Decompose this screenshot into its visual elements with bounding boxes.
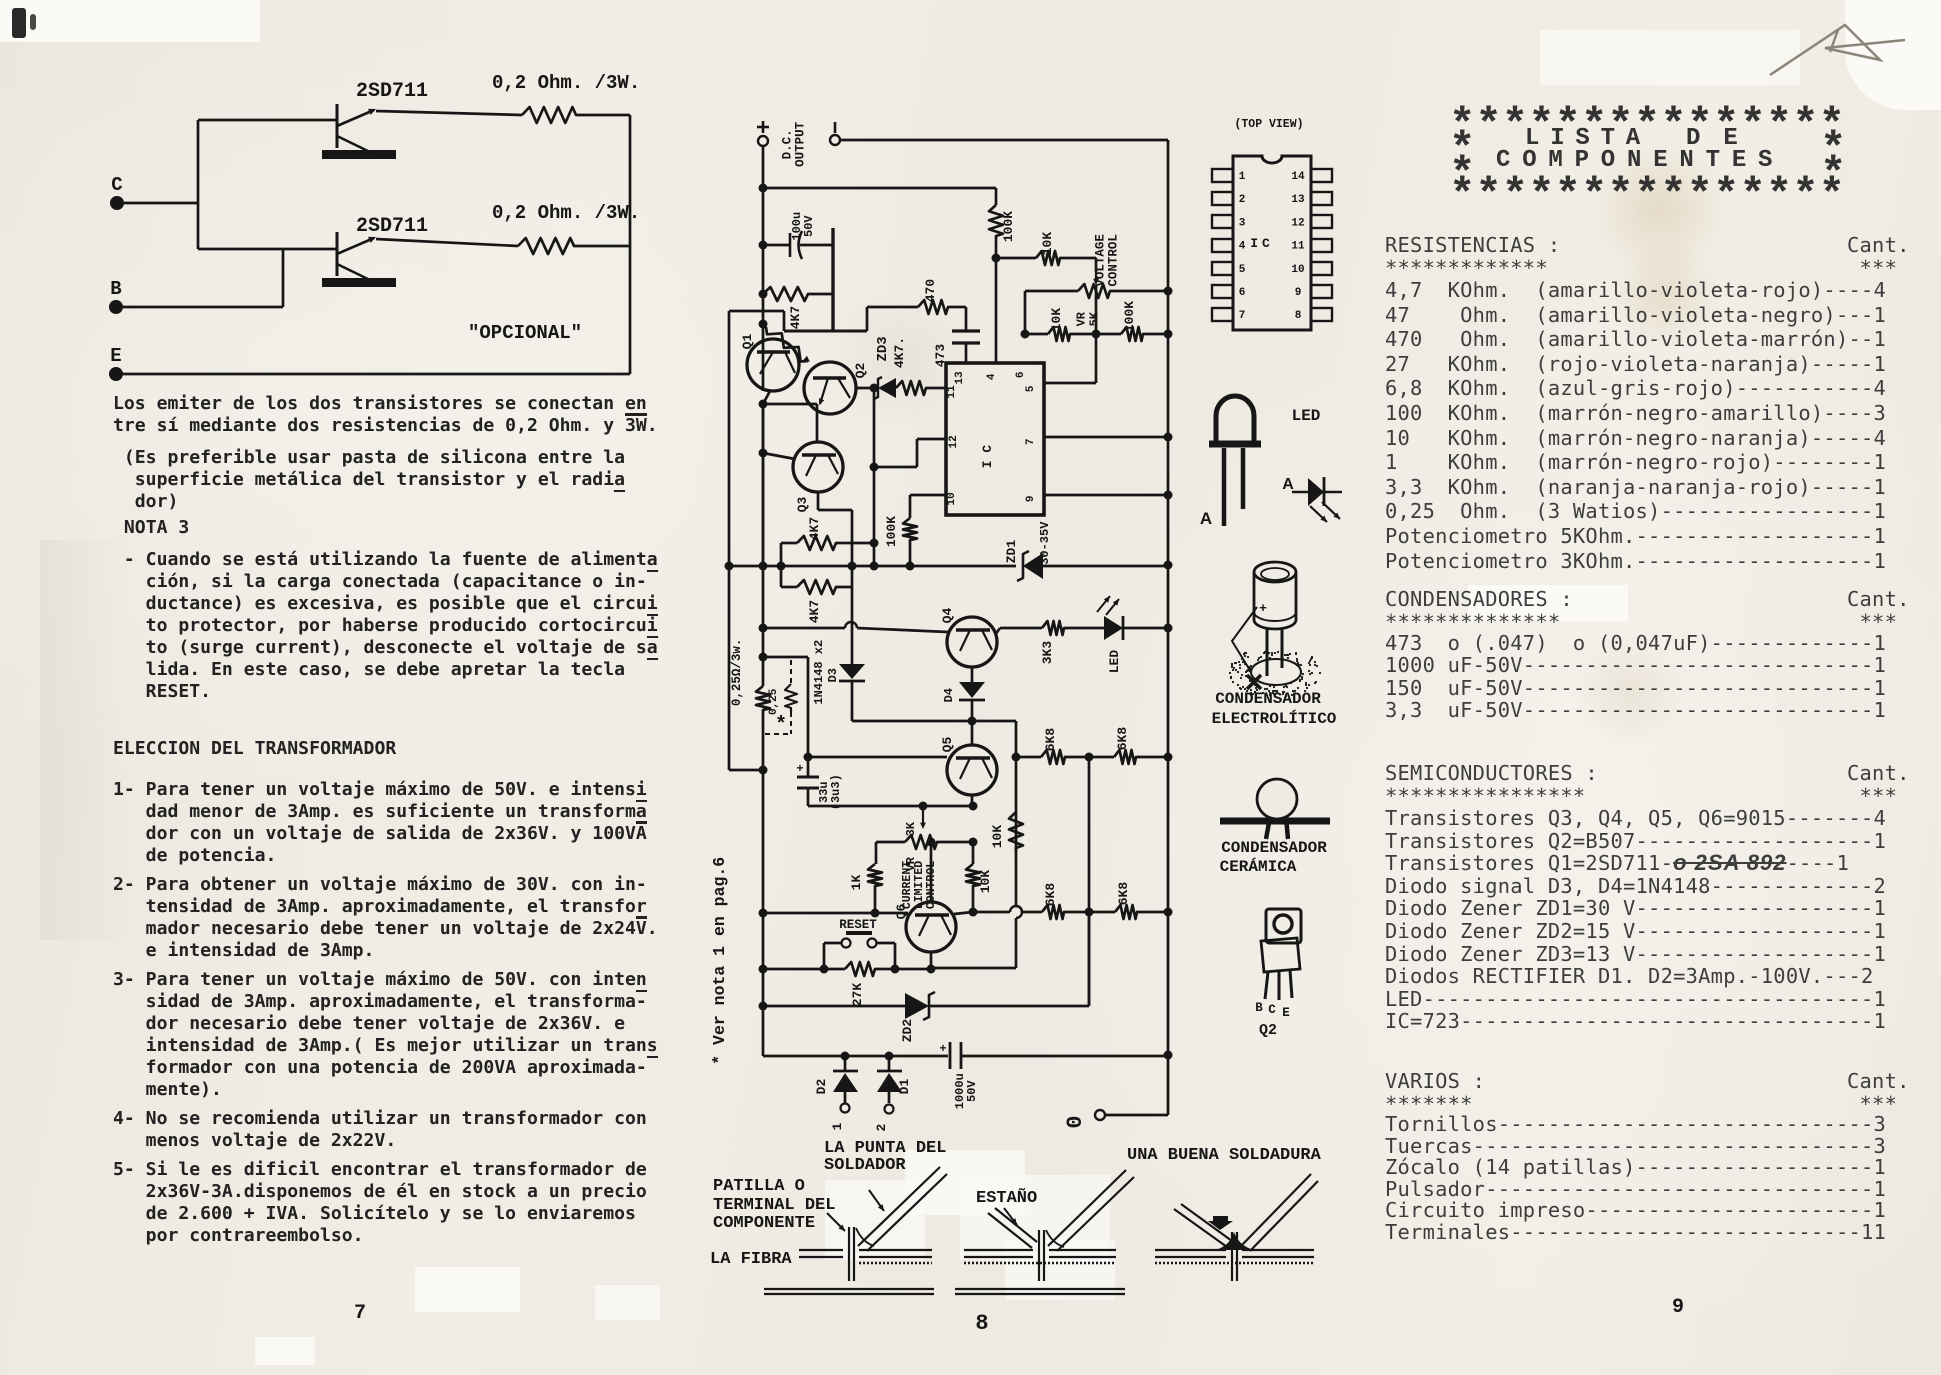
svg-text:10K: 10K	[1040, 232, 1055, 256]
svg-text:2SD711: 2SD711	[356, 80, 428, 103]
svg-text:LA FIBRA: LA FIBRA	[710, 1250, 792, 1269]
svg-text:1: 1	[830, 1122, 845, 1130]
svg-text:SOLDADOR: SOLDADOR	[824, 1156, 906, 1175]
svg-text:COMPONENTE: COMPONENTE	[713, 1214, 815, 1233]
svg-text:VR: VR	[1075, 311, 1089, 326]
svg-text:D.C.: D.C.	[781, 129, 795, 159]
svg-text:5: 5	[1239, 264, 1246, 276]
svg-text:0: 0	[1063, 1115, 1088, 1128]
svg-text:0,25: 0,25	[768, 688, 780, 715]
svg-text:(TOP VIEW): (TOP VIEW)	[1234, 118, 1303, 131]
svg-text:10K: 10K	[1049, 308, 1064, 332]
svg-text:Q5: Q5	[940, 737, 955, 753]
svg-text:ZD2: ZD2	[900, 1019, 915, 1043]
svg-text:13: 13	[954, 371, 966, 385]
svg-text:2SD711: 2SD711	[356, 215, 428, 238]
svg-text:+: +	[1259, 601, 1267, 616]
svg-text:0,2 Ohm. /3W.: 0,2 Ohm. /3W.	[492, 72, 640, 94]
svg-text:6: 6	[1239, 287, 1246, 299]
svg-text:ELECTROLÍTICO: ELECTROLÍTICO	[1212, 709, 1337, 728]
svg-text:Q1: Q1	[740, 334, 755, 350]
svg-text:Q2: Q2	[853, 363, 868, 379]
svg-text:B: B	[110, 278, 121, 300]
svg-text:9: 9	[1025, 496, 1037, 503]
svg-text:6: 6	[1015, 372, 1027, 379]
svg-text:C: C	[111, 174, 122, 196]
svg-text:D4: D4	[942, 688, 956, 702]
svg-text:50V: 50V	[965, 1080, 979, 1102]
svg-text:1: 1	[1239, 171, 1246, 183]
svg-text:*: *	[775, 714, 787, 737]
svg-text:D2: D2	[814, 1079, 829, 1095]
svg-text:CERÁMICA: CERÁMICA	[1220, 857, 1297, 876]
svg-text:E: E	[1282, 1006, 1290, 1020]
svg-text:TERMINAL DEL: TERMINAL DEL	[713, 1196, 835, 1215]
svg-text:9: 9	[1672, 1296, 1684, 1319]
svg-text:50V: 50V	[802, 215, 816, 237]
svg-text:4: 4	[986, 373, 998, 380]
svg-text:ESTAÑO: ESTAÑO	[976, 1187, 1037, 1208]
svg-text:12: 12	[948, 435, 960, 448]
svg-text:Q4: Q4	[940, 608, 955, 624]
svg-text:CONDENSADOR: CONDENSADOR	[1215, 690, 1321, 708]
svg-text:1N4148 x2: 1N4148 x2	[812, 640, 826, 705]
svg-text:E: E	[110, 345, 121, 367]
svg-text:I C: I C	[980, 445, 995, 469]
svg-text:3: 3	[1239, 217, 1246, 229]
svg-text:LED: LED	[1107, 650, 1122, 674]
svg-text:UNA BUENA SOLDADURA: UNA BUENA SOLDADURA	[1127, 1146, 1322, 1165]
svg-text:10: 10	[1291, 264, 1304, 276]
svg-text:D1: D1	[897, 1079, 912, 1095]
svg-text:Q6: Q6	[894, 904, 909, 920]
svg-text:7: 7	[1239, 310, 1246, 322]
svg-text:5: 5	[1025, 385, 1037, 392]
svg-text:11: 11	[1291, 241, 1305, 253]
svg-text:A: A	[1200, 509, 1212, 528]
svg-text:8: 8	[1295, 310, 1302, 322]
svg-text:7: 7	[1025, 439, 1037, 446]
svg-text:IC: IC	[1250, 236, 1274, 251]
svg-text:2: 2	[1239, 194, 1246, 206]
svg-text:OUTPUT: OUTPUT	[794, 121, 808, 167]
svg-text:LED: LED	[1292, 407, 1321, 425]
svg-text:10K: 10K	[990, 825, 1005, 849]
svg-text:6K8: 6K8	[1116, 882, 1131, 906]
svg-text:4K7: 4K7	[807, 517, 822, 540]
svg-text:ZD1: ZD1	[1004, 540, 1019, 564]
svg-text:RESET: RESET	[839, 918, 877, 932]
svg-text:0,25Ω/3w.: 0,25Ω/3w.	[730, 639, 744, 707]
svg-text:470: 470	[923, 279, 938, 303]
svg-text:0,2 Ohm. /3W.: 0,2 Ohm. /3W.	[492, 202, 640, 224]
svg-text:Q2: Q2	[1259, 1022, 1277, 1039]
svg-text:12: 12	[1291, 217, 1304, 229]
svg-text:CONTROL: CONTROL	[1107, 234, 1121, 287]
svg-text:100K: 100K	[1001, 211, 1016, 242]
svg-text:8: 8	[975, 1311, 988, 1336]
svg-text:100K: 100K	[884, 516, 899, 547]
svg-text:13: 13	[1291, 194, 1305, 206]
svg-text:6K8: 6K8	[1115, 727, 1130, 751]
svg-text:4K7.: 4K7.	[892, 337, 907, 368]
svg-text:* Ver nota 1 en pag.6: * Ver nota 1 en pag.6	[710, 857, 729, 1065]
svg-text:10: 10	[946, 492, 958, 505]
svg-text:A: A	[1282, 476, 1294, 493]
svg-text:100K: 100K	[1122, 301, 1137, 332]
svg-text:3K: 3K	[904, 821, 918, 836]
svg-text:2: 2	[874, 1123, 889, 1131]
svg-text:6K8: 6K8	[1043, 883, 1058, 907]
svg-text:4: 4	[1239, 241, 1246, 253]
svg-text:27K: 27K	[850, 983, 865, 1007]
svg-text:9: 9	[1295, 287, 1302, 299]
svg-text:30-35V: 30-35V	[1038, 521, 1052, 565]
svg-text:3K3: 3K3	[1040, 641, 1055, 665]
svg-text:1K: 1K	[849, 875, 864, 891]
svg-text:6K8: 6K8	[1043, 728, 1058, 752]
svg-text:11: 11	[946, 385, 958, 399]
svg-text:4K7: 4K7	[788, 306, 803, 329]
svg-text:PATILLA O: PATILLA O	[713, 1177, 805, 1196]
svg-text:14: 14	[1291, 171, 1305, 183]
svg-text:ZD3: ZD3	[875, 336, 891, 361]
svg-text:Q3: Q3	[795, 497, 810, 513]
svg-text:C: C	[1268, 1003, 1276, 1017]
svg-text:10K: 10K	[978, 870, 993, 894]
svg-text:7: 7	[354, 1302, 366, 1325]
svg-text:CONDENSADOR: CONDENSADOR	[1221, 839, 1327, 857]
svg-text:5K: 5K	[1088, 311, 1102, 326]
svg-text:+: +	[939, 1042, 946, 1056]
svg-text:4K7: 4K7	[807, 600, 822, 623]
svg-text:+: +	[796, 762, 803, 776]
svg-text:B: B	[1255, 1001, 1263, 1015]
svg-text:D3: D3	[826, 668, 840, 682]
svg-text:"OPCIONAL": "OPCIONAL"	[468, 322, 582, 344]
